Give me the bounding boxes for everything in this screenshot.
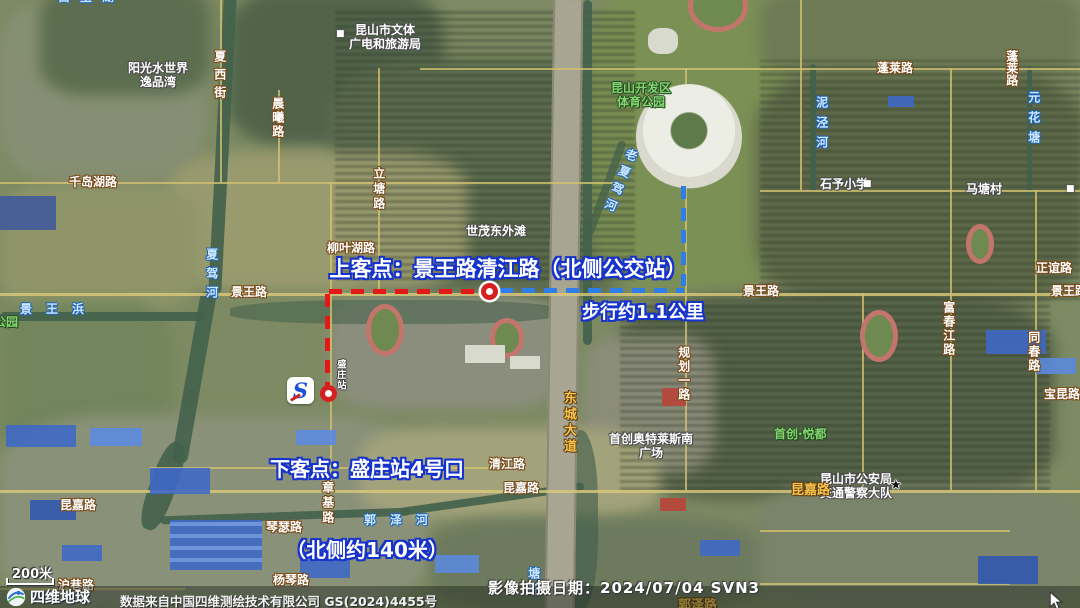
satellite-map[interactable]: S 上客点：景王路清江路（北侧公交站） 步行约1.1公里 下客点：盛庄站4号口 … (0, 0, 1080, 608)
road-jingwang (0, 293, 1080, 296)
stadium (636, 84, 742, 190)
blue-warehouse (986, 330, 1046, 354)
dropoff-point-label: 下客点：盛庄站4号口 （北侧约140米） (270, 402, 464, 608)
residential-texture (760, 60, 1080, 300)
white-building (648, 28, 678, 54)
red-building (660, 498, 686, 511)
running-track (966, 224, 994, 264)
metro-logo[interactable]: S (287, 377, 314, 404)
satellite-patch (40, 0, 210, 95)
road-qinse (760, 530, 1010, 532)
running-track (366, 304, 404, 356)
attribution-text: 数据来自中国四维测绘技术有限公司 GS(2024)4455号 (120, 591, 437, 608)
globe-icon (6, 587, 26, 607)
blue-warehouse (90, 428, 142, 446)
canal-yuanhuatang (1027, 66, 1032, 196)
logo-text: 四维地球 (30, 586, 90, 607)
blue-warehouse (62, 545, 102, 561)
road-fuchunjiang (950, 68, 952, 490)
river-jingwangbang (0, 312, 205, 321)
route-segment-blue-horizontal (500, 288, 684, 293)
blue-warehouse (700, 540, 740, 556)
dropoff-label-line1: 下客点：盛庄站4号口 (270, 456, 464, 483)
running-track (860, 310, 898, 362)
road-matang (760, 190, 1080, 192)
walk-distance-label: 步行约1.1公里 (582, 298, 704, 324)
capture-date-text: 影像拍摄日期：2024/07/04 SVN3 (488, 577, 760, 598)
blue-warehouse (888, 96, 914, 107)
road-vertical (800, 0, 802, 190)
canal-nijing (810, 64, 816, 192)
blue-warehouse (978, 556, 1038, 584)
blue-warehouse (1036, 358, 1076, 374)
white-building (465, 345, 505, 363)
blue-warehouse (30, 500, 76, 520)
station-exit-marker[interactable] (320, 385, 337, 402)
mouse-cursor (1048, 591, 1064, 608)
road-qiandaohu (0, 182, 620, 184)
road-xiaxi (220, 0, 222, 182)
road-penglai (420, 68, 1080, 70)
road-chenxi (278, 90, 280, 182)
scale-bar (6, 578, 54, 585)
route-segment-red-horizontal (329, 289, 481, 294)
route-segment-red-vertical (325, 294, 330, 387)
road-yangqin (760, 583, 1010, 585)
white-building (510, 356, 540, 369)
siwei-earth-logo: 四维地球 (6, 586, 90, 607)
blue-warehouse (170, 520, 262, 570)
blue-warehouse (150, 468, 210, 494)
blue-warehouse (6, 425, 76, 447)
dropoff-label-line2: （北侧约140米） (270, 537, 464, 564)
pickup-point-label: 上客点：景王路清江路（北侧公交站） (330, 253, 687, 283)
blue-warehouse (0, 196, 56, 230)
pickup-point-marker[interactable] (481, 283, 498, 300)
red-building (662, 388, 686, 406)
